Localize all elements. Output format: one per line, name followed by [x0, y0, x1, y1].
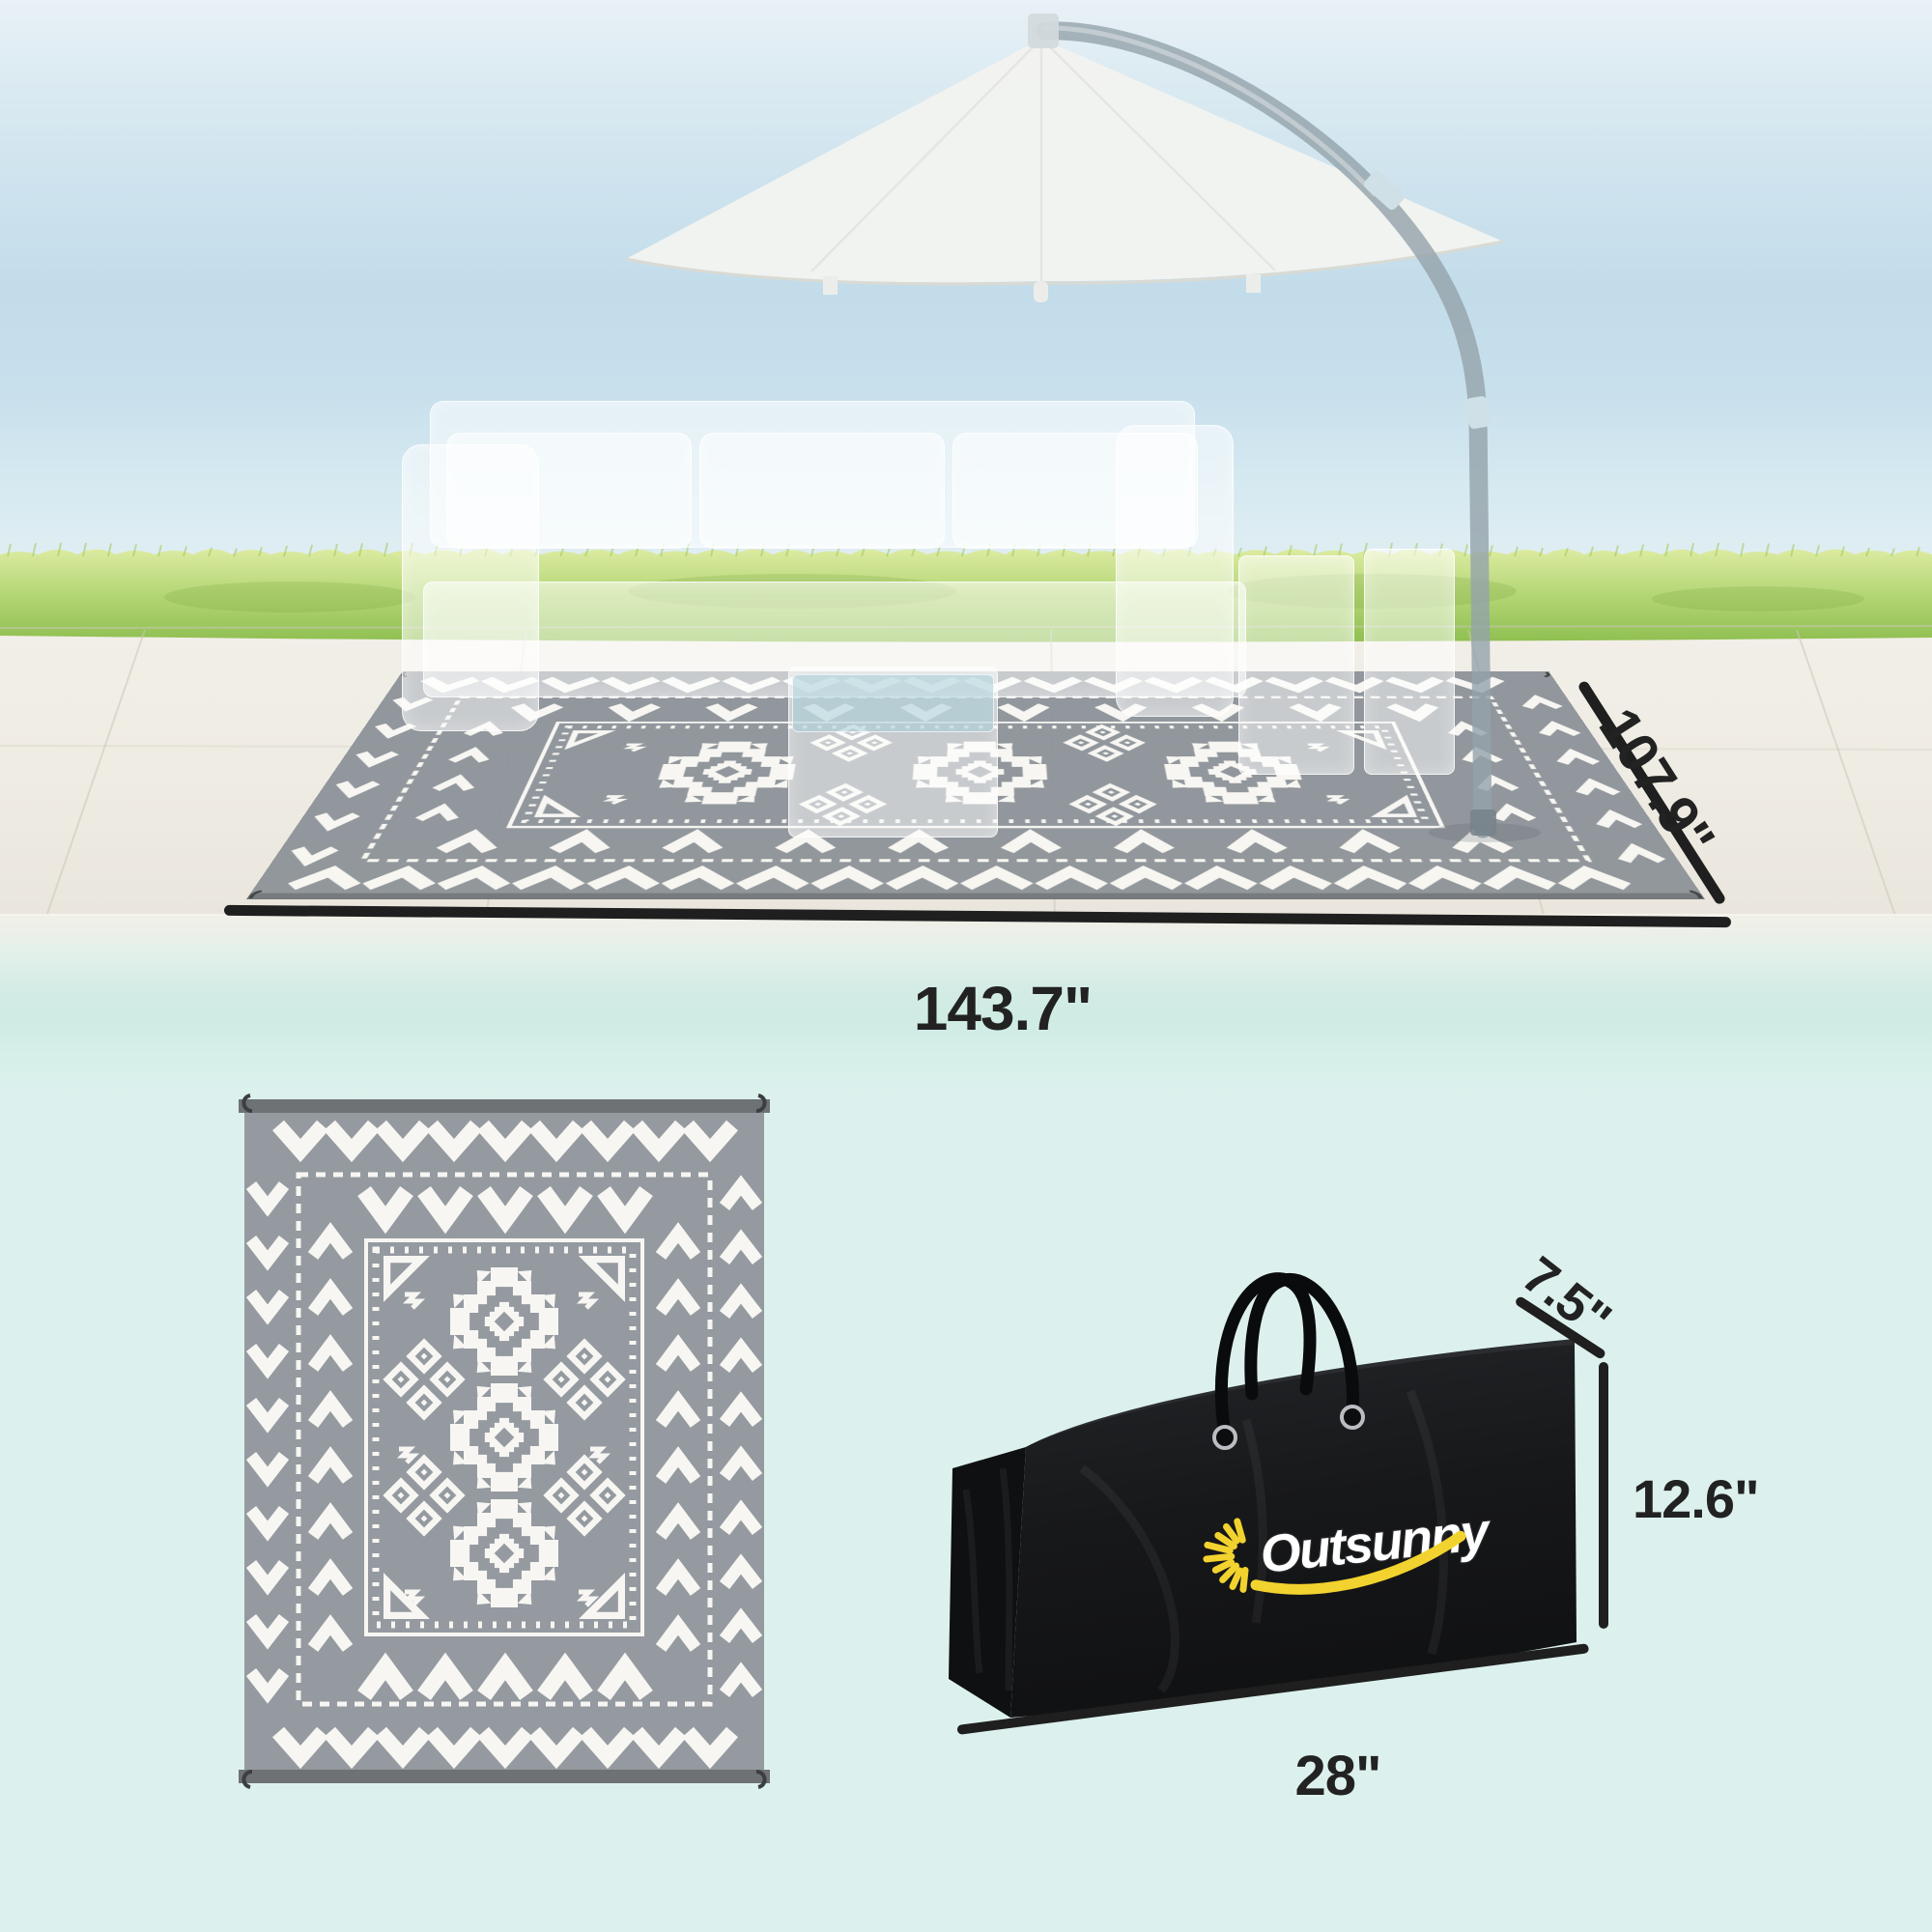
- grommet-icon: [1214, 1427, 1236, 1448]
- rug-end-bar: [239, 1770, 770, 1783]
- dimension-line-bag-height: [1599, 1362, 1608, 1629]
- umbrella-bracket: [1028, 14, 1059, 48]
- carry-bag-image: Outsunny: [908, 1236, 1642, 1797]
- umbrella-flap: [1034, 281, 1048, 302]
- umbrella-joint: [1464, 395, 1491, 429]
- umbrella-flap: [823, 276, 838, 295]
- dimension-label-rug-length: 143.7": [896, 978, 1109, 1039]
- flat-rug-image: [239, 1086, 770, 1797]
- dimension-label-bag-length: 28": [1265, 1748, 1410, 1804]
- cantilever-umbrella: [0, 0, 1932, 1111]
- dimension-label-bag-height: 12.6": [1633, 1472, 1759, 1526]
- grommet-icon: [1342, 1406, 1363, 1428]
- rug-end-bar: [239, 1099, 770, 1113]
- outdoor-scene: 143.7" 107.9": [0, 0, 1932, 1111]
- umbrella-base: [1470, 810, 1496, 836]
- umbrella-flap: [1246, 274, 1261, 293]
- umbrella-canopy: [626, 39, 1503, 282]
- product-dimension-image: 143.7" 107.9" Outsunny: [0, 0, 1932, 1932]
